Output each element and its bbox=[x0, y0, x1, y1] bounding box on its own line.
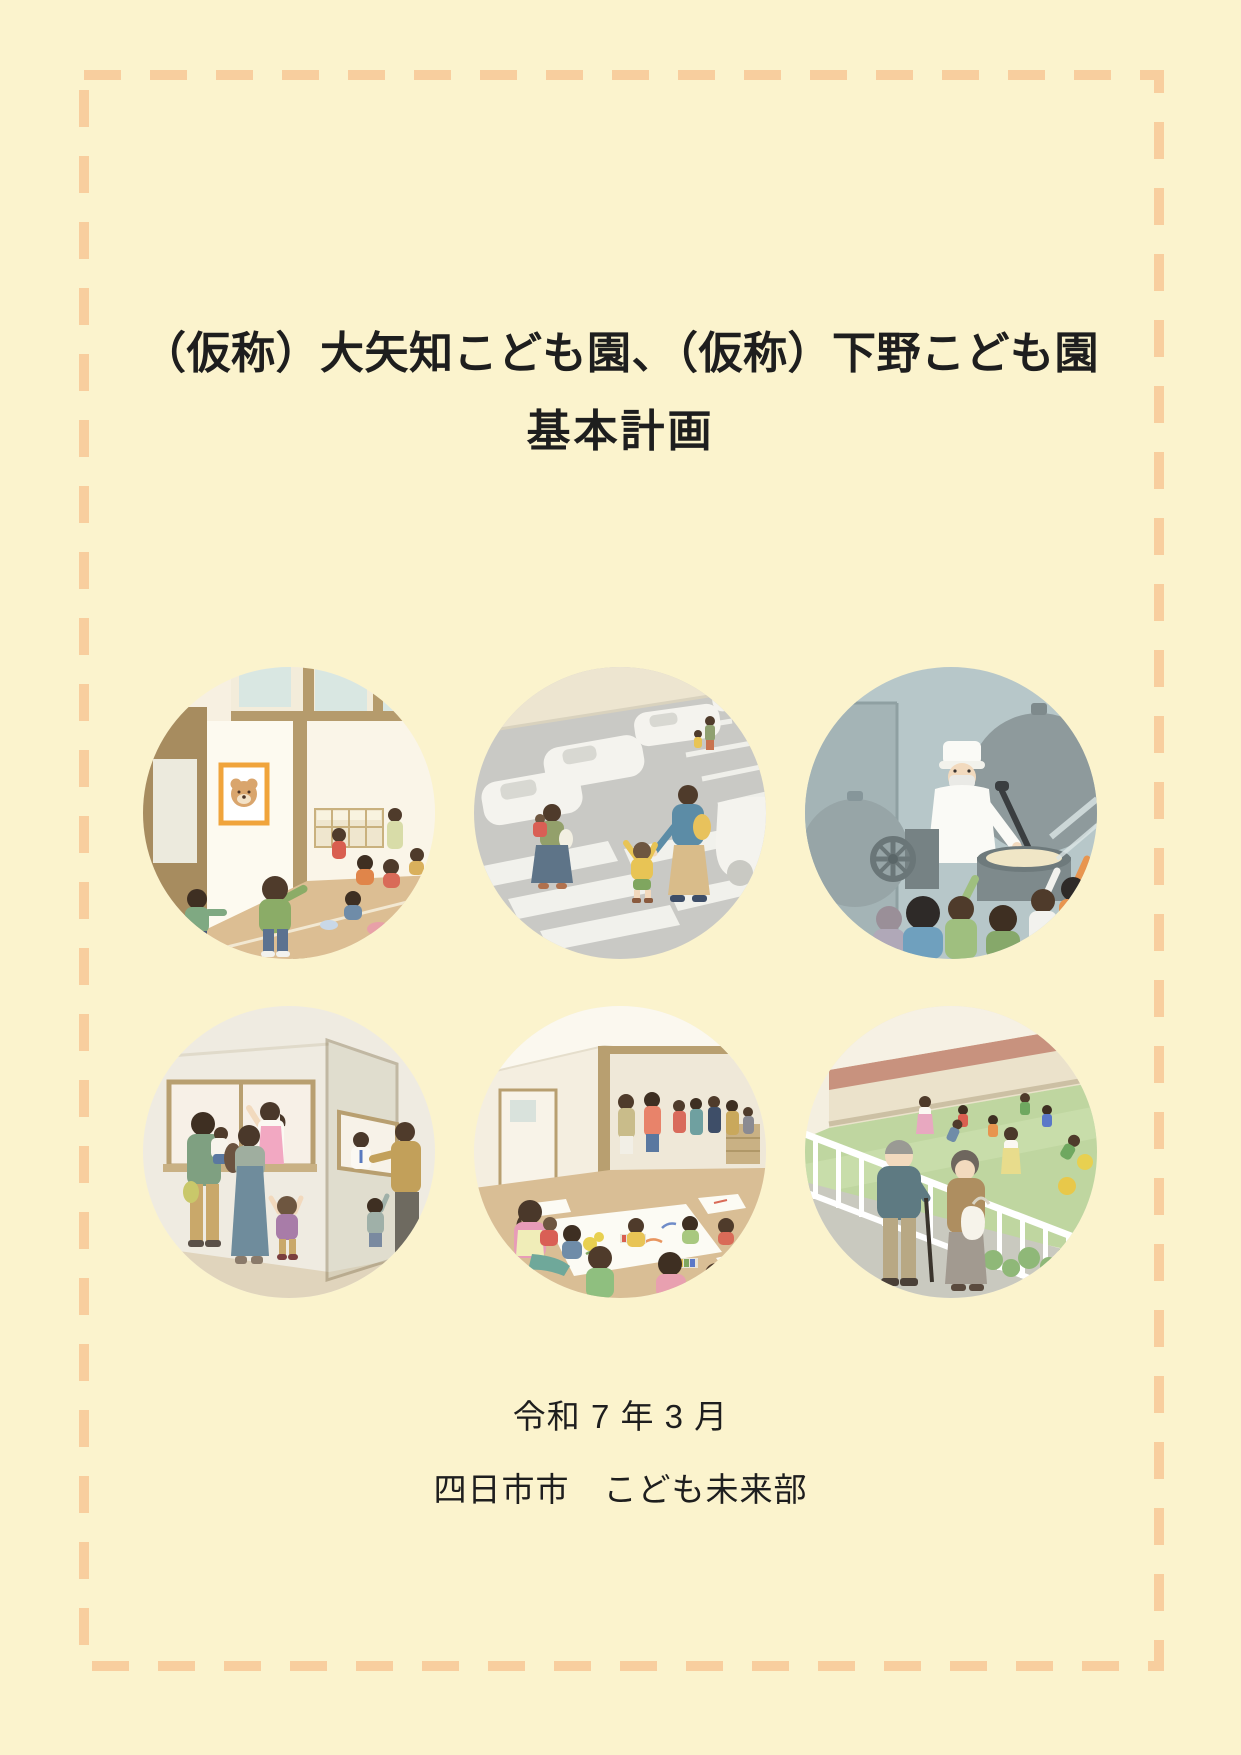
title-block: （仮称）大矢知こども園、（仮称）下野こども園 基本計画 bbox=[0, 330, 1241, 457]
cover-page: （仮称）大矢知こども園、（仮称）下野こども園 基本計画 bbox=[0, 0, 1241, 1755]
document-title-line2: 基本計画 bbox=[0, 408, 1241, 456]
document-title-line1: （仮称）大矢知こども園、（仮称）下野こども園 bbox=[0, 330, 1241, 378]
playroom-drawing-svg bbox=[474, 1006, 766, 1298]
schoolyard-fence-svg bbox=[805, 1006, 1097, 1298]
reception-window-svg bbox=[143, 1006, 435, 1298]
illustration-classroom-entrance bbox=[143, 667, 435, 959]
illustration-schoolyard-fence bbox=[805, 1006, 1097, 1298]
bear-picture-icon bbox=[221, 765, 267, 823]
illustration-grid bbox=[143, 667, 1097, 1298]
illustration-playroom-drawing bbox=[474, 1006, 766, 1298]
school-kitchen-svg bbox=[805, 667, 1097, 959]
publication-date: 令和 7 年 3 月 bbox=[0, 1390, 1241, 1438]
illustration-reception-window bbox=[143, 1006, 435, 1298]
illustration-school-kitchen bbox=[805, 667, 1097, 959]
illustration-parking-crosswalk bbox=[474, 667, 766, 959]
classroom-entrance-svg bbox=[143, 667, 435, 959]
parking-crosswalk-svg bbox=[474, 667, 766, 959]
publisher: 四日市市 こども未来部 bbox=[0, 1463, 1241, 1511]
